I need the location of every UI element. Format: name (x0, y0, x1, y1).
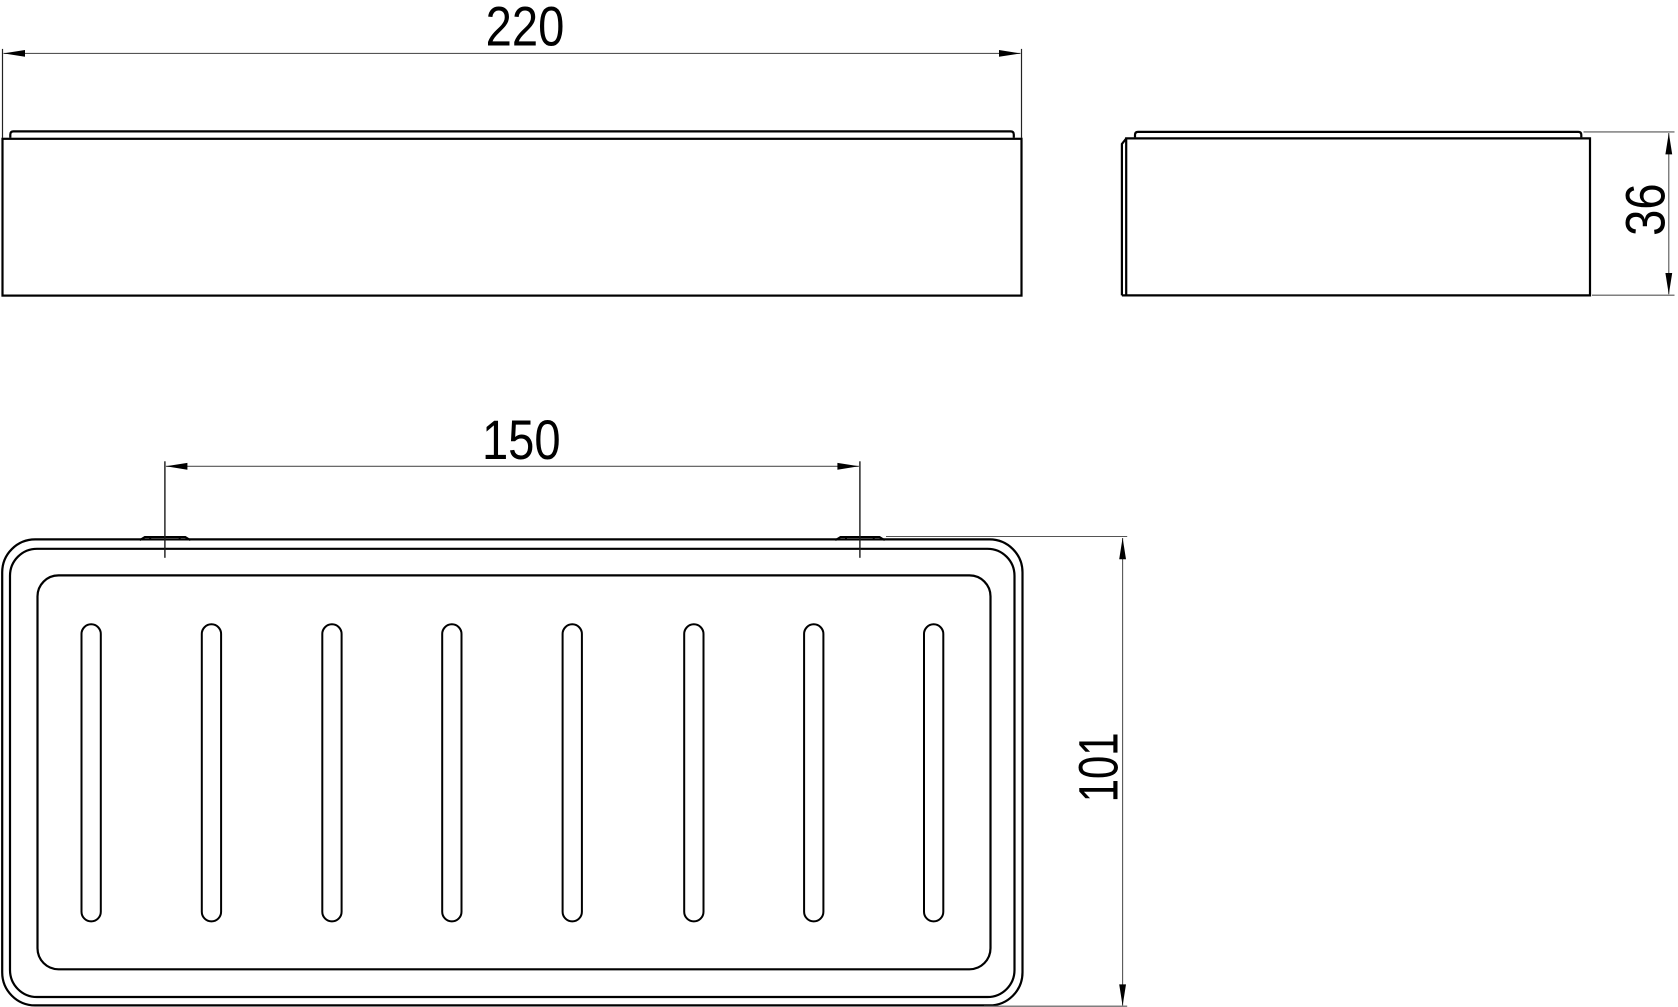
svg-text:150: 150 (482, 408, 561, 470)
svg-text:101: 101 (1067, 733, 1129, 803)
svg-text:36: 36 (1614, 183, 1676, 235)
svg-text:220: 220 (486, 0, 565, 57)
